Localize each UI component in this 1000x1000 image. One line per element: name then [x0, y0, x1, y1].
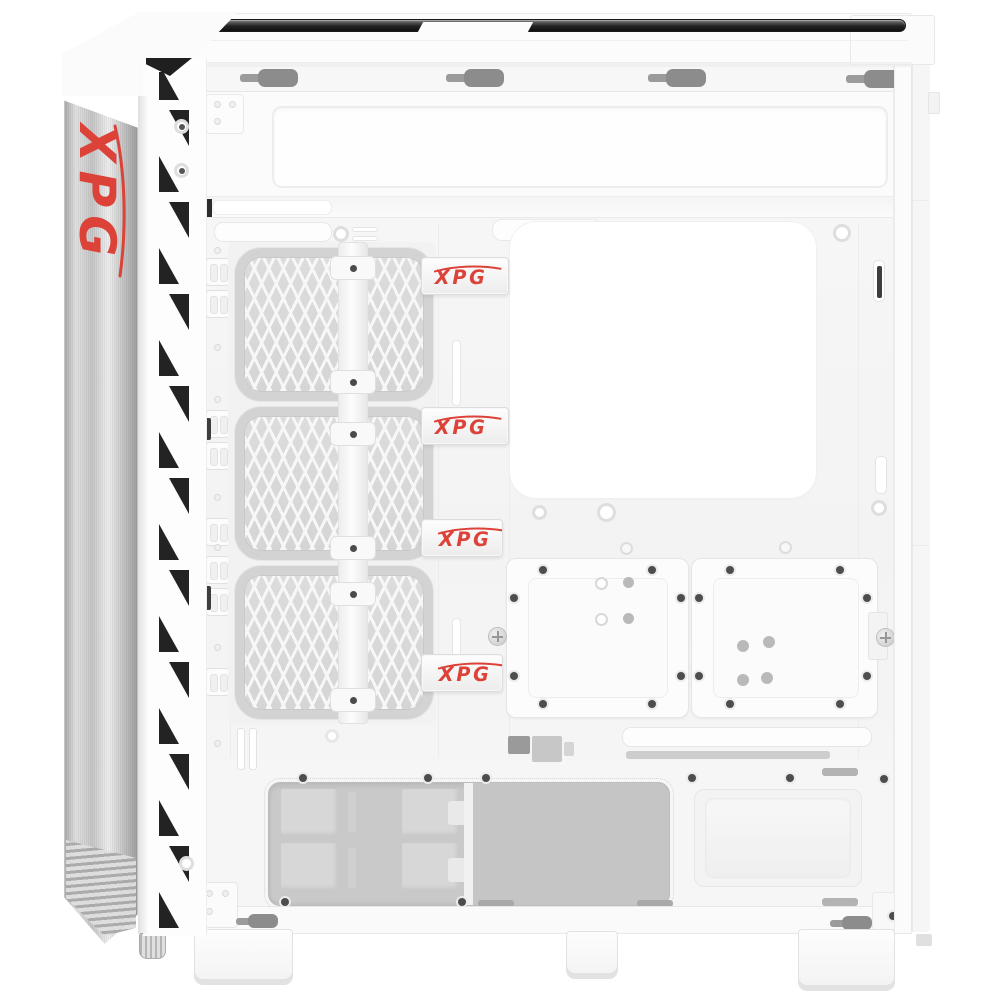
grommet-ring: [597, 503, 616, 522]
mount-tab: [822, 898, 858, 906]
mini-slot: [352, 236, 378, 241]
psu-bracket-slot: [622, 727, 872, 747]
channel-slot: [452, 340, 461, 406]
plate-screw: [510, 594, 518, 602]
xpg-front-logo: XPG: [72, 110, 128, 288]
screw-hole: [214, 544, 221, 551]
screw: [281, 898, 289, 906]
keyhole-slot: [830, 916, 872, 930]
cable-strap: XPG: [421, 407, 509, 445]
cable-strap: XPG: [421, 654, 503, 692]
bottom-cover-inner: [705, 798, 851, 878]
channel-slot: [249, 728, 257, 770]
fan-rail: [338, 242, 368, 724]
drive-plate-left-relief: [528, 578, 668, 698]
vent-column: [143, 58, 207, 936]
mount-hole: [737, 674, 749, 686]
xpg-strap-logo: XPG: [428, 660, 503, 686]
rear-edge-inner: [894, 62, 912, 932]
edge-seam: [913, 545, 929, 546]
hdd-cage-rail: [348, 792, 356, 832]
top-glass-trim: [194, 19, 906, 32]
panel-screw: [174, 163, 189, 178]
keyhole-head: [248, 914, 278, 928]
rail-clip: [330, 688, 376, 712]
plate-screw: [836, 700, 844, 708]
plate-screw: [677, 672, 685, 680]
bracket-hole: [214, 118, 221, 125]
top-panel-notch: [417, 22, 533, 34]
connector-block: [564, 742, 574, 756]
keyhole-slot: [648, 69, 706, 87]
plate-screw: [695, 594, 703, 602]
plate-screw: [539, 700, 547, 708]
thumbscrew: [489, 628, 506, 645]
screw-hole: [214, 740, 221, 747]
case-foot-front: [194, 929, 293, 985]
rail-clip: [330, 422, 376, 446]
grommet-ring: [871, 500, 887, 516]
cable-cutout: [214, 222, 332, 242]
xpg-logo-text: XPG: [72, 121, 126, 264]
plate-screw: [648, 566, 656, 574]
rail-clip: [330, 536, 376, 560]
plate-screw: [677, 594, 685, 602]
rail-clip: [330, 582, 376, 606]
xpg-logo-text: XPG: [434, 416, 488, 439]
connector-block: [532, 736, 562, 762]
mount-hole-open: [595, 577, 608, 590]
mount-hole: [737, 640, 749, 652]
plate-screw: [836, 566, 844, 574]
plate-screw: [539, 566, 547, 574]
screw: [482, 774, 490, 782]
plate-screw: [648, 700, 656, 708]
cable-strap: XPG: [421, 257, 509, 295]
drive-plate-right-relief: [713, 578, 859, 698]
radiator-cutout: [272, 106, 888, 188]
case-foot-rear: [798, 929, 895, 991]
panel-screw-hole: [179, 856, 194, 871]
mini-slot: [352, 227, 378, 232]
xpg-logo-text: XPG: [434, 266, 488, 289]
keyhole-slot: [446, 69, 504, 87]
plate-screw: [863, 672, 871, 680]
screw-hole: [214, 644, 221, 651]
channel-slot: [237, 728, 245, 770]
plate-screw: [726, 566, 734, 574]
screw-hole: [214, 344, 221, 351]
bracket-hole: [222, 890, 229, 897]
standoff-hole: [620, 542, 633, 555]
grommet-ring: [833, 224, 851, 242]
thumbscrew: [877, 629, 894, 646]
plate-screw: [863, 594, 871, 602]
keyhole-slot: [236, 914, 278, 928]
screw-hole: [214, 396, 221, 403]
screw: [299, 774, 307, 782]
case-foot-middle: [566, 931, 618, 979]
rear-edge-outer: [912, 26, 930, 932]
rail-clip: [330, 256, 376, 280]
bracket-hole: [206, 908, 213, 915]
keyhole-head: [464, 69, 504, 87]
xpg-logo-text: XPG: [438, 663, 492, 686]
grommet-ring: [333, 226, 349, 242]
mount-hole: [623, 577, 634, 588]
top-panel-shadow: [150, 62, 912, 67]
mount-hole: [761, 672, 773, 684]
hdd-cage-block: [281, 789, 337, 835]
screw: [688, 774, 696, 782]
front-panel-logo: XPG: [72, 110, 128, 288]
tie-slot: [875, 456, 887, 494]
mount-hole-open: [595, 613, 608, 626]
keyhole-head: [258, 69, 298, 87]
vent-triangles: [143, 58, 207, 936]
xpg-strap-logo: XPG: [424, 413, 506, 439]
plate-screw: [726, 700, 734, 708]
tie-slot-dark-bar: [877, 266, 882, 298]
mid-rail-notch: [212, 200, 332, 215]
edge-notch: [916, 934, 932, 946]
psu-bracket-bar: [626, 751, 830, 759]
edge-seam: [913, 200, 929, 201]
xpg-logo-text: XPG: [438, 528, 492, 551]
screw: [424, 774, 432, 782]
bracket-hole: [214, 101, 221, 108]
rail-clip: [330, 370, 376, 394]
panel-screw: [174, 119, 189, 134]
screw-hole: [214, 247, 221, 254]
hinge-tab: [928, 92, 940, 114]
front-gap-shadow: [138, 96, 148, 934]
pc-case-product-photo: XPG XPG XPG XPG: [0, 0, 1000, 1000]
screw: [458, 898, 466, 906]
mount-hole: [763, 636, 775, 648]
screw-hole: [214, 494, 221, 501]
front-foot-knob: [139, 933, 166, 959]
mount-tab: [822, 768, 858, 776]
mount-hole: [623, 613, 634, 624]
cpu-cooler-cutout: [510, 222, 816, 498]
hdd-cage-rail: [348, 848, 356, 888]
cable-strap: XPG: [421, 519, 503, 557]
screw: [786, 774, 794, 782]
psu-recess-right: [473, 783, 669, 905]
keyhole-head: [666, 69, 706, 87]
plate-screw: [510, 672, 518, 680]
grommet-ring: [325, 729, 339, 743]
hdd-cage-block: [281, 843, 337, 889]
bracket-hole: [206, 890, 213, 897]
grommet-ring: [532, 505, 547, 520]
standoff-hole: [779, 541, 792, 554]
xpg-strap-logo: XPG: [424, 263, 506, 289]
top-panel-seam: [152, 40, 908, 41]
connector-block: [508, 736, 530, 754]
bay-divider: [464, 783, 473, 905]
xpg-strap-logo: XPG: [428, 525, 503, 551]
keyhole-slot: [240, 69, 298, 87]
bracket-hole: [229, 101, 236, 108]
corner-bracket: [206, 94, 244, 134]
plate-screw: [695, 672, 703, 680]
screw: [880, 775, 888, 783]
keyhole-head: [842, 916, 872, 930]
